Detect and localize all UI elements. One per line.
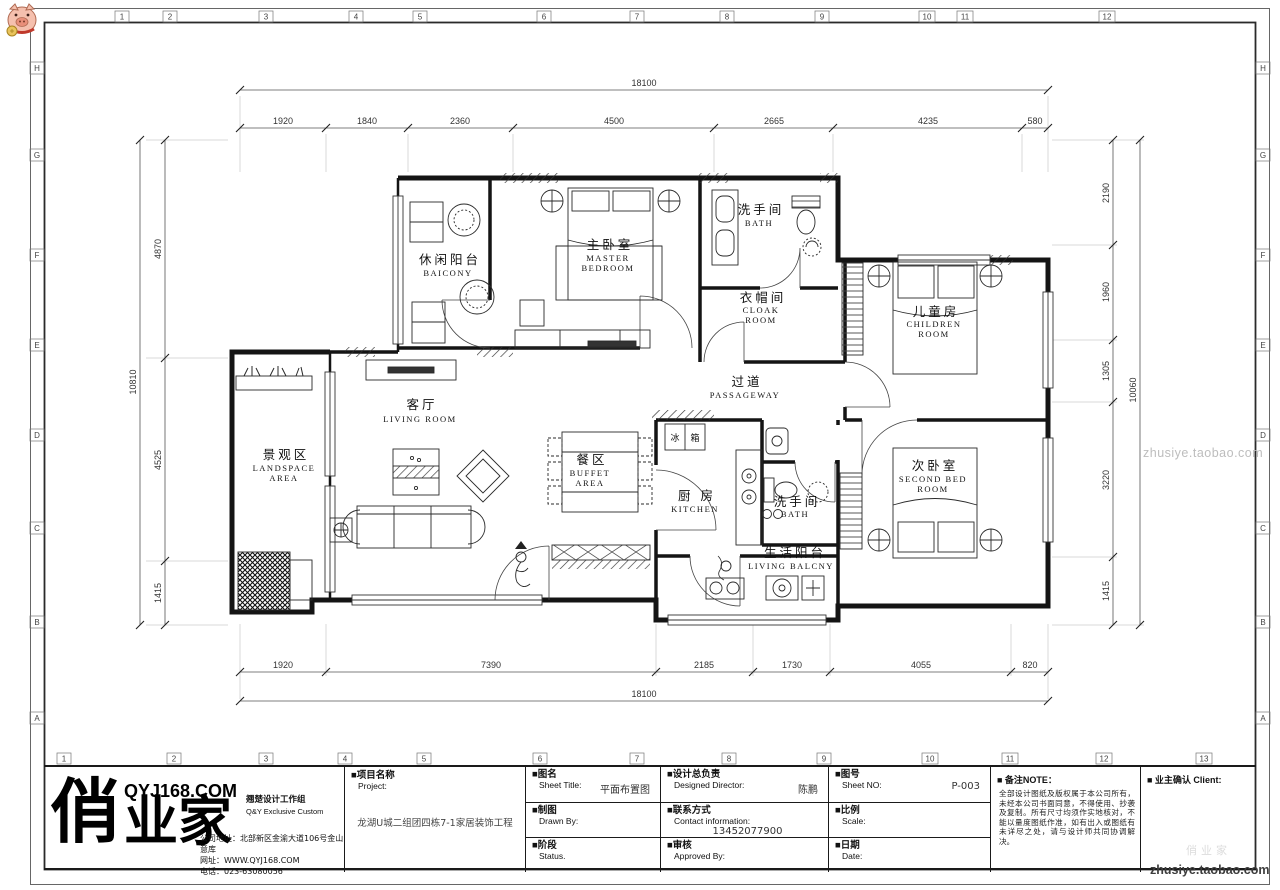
svg-text:C: C <box>1260 524 1266 533</box>
svg-text:1: 1 <box>62 755 67 764</box>
svg-text:BATH: BATH <box>781 509 809 519</box>
project-name: 龙湖U城二组团四栋7-1家居装饰工程 <box>345 815 525 829</box>
svg-text:AREA: AREA <box>269 473 298 483</box>
svg-text:A: A <box>1260 714 1266 723</box>
note-text: 全部设计图纸及版权属于本公司所有，未经本公司书面同意，不得使用、抄袭及复制。所有… <box>991 788 1140 847</box>
sheet-no-value: P-003 <box>951 781 980 792</box>
svg-text:12: 12 <box>1103 13 1112 22</box>
svg-text:过道: 过道 <box>731 374 762 389</box>
room-label-bath-2: 洗手间BATH <box>774 494 821 519</box>
svg-text:H: H <box>1260 64 1266 73</box>
company-phone: 电话：023-63080056 <box>200 866 344 877</box>
sheet-title-label-cn: ■图名 <box>532 770 660 780</box>
svg-text:KITCHEN: KITCHEN <box>671 504 719 514</box>
contact-phone: 13452077900 <box>667 826 828 837</box>
svg-text:9: 9 <box>822 755 827 764</box>
note-label: ■ 备注NOTE： <box>991 767 1140 788</box>
dim-bottom: 18100 1920 7390 2185 1730 4055 820 <box>273 660 1038 699</box>
svg-text:B: B <box>34 618 39 627</box>
svg-text:CLOAK: CLOAK <box>743 305 780 315</box>
extension-lines <box>146 96 1144 699</box>
svg-text:儿童房: 儿童房 <box>913 304 960 319</box>
scale-cell: ■比例 Scale: <box>829 802 990 837</box>
svg-text:7: 7 <box>635 13 640 22</box>
svg-text:18100: 18100 <box>631 689 656 699</box>
studio-name-en: Q&Y Exclusive Custom <box>246 807 323 816</box>
svg-text:D: D <box>1260 431 1266 440</box>
drawn-by-label-cn: ■制图 <box>532 806 660 816</box>
room-label-second-bedroom: 次卧室SECOND BEDROOM <box>899 458 967 494</box>
svg-text:PASSAGEWAY: PASSAGEWAY <box>710 390 781 400</box>
svg-text:4: 4 <box>343 755 348 764</box>
project-cell: ■项目名称 Project: 龙湖U城二组团四栋7-1家居装饰工程 <box>344 767 525 872</box>
room-label-landscape-area: 景观区LANDSPACEAREA <box>253 447 316 483</box>
status-label-en: Status. <box>532 851 660 861</box>
svg-text:SECOND BED: SECOND BED <box>899 474 967 484</box>
dim-left: 10810 4870 4525 1415 <box>128 239 163 603</box>
living-room-furniture <box>330 360 509 548</box>
grid-left: H G F E D C B A <box>30 62 44 724</box>
svg-text:洗手间: 洗手间 <box>774 494 821 509</box>
svg-text:休闲阳台: 休闲阳台 <box>419 252 481 267</box>
svg-text:1920: 1920 <box>273 660 293 670</box>
floorplan-sheet: 1 2 3 4 5 6 7 8 9 10 11 12 1 2 3 4 5 6 7… <box>0 0 1280 890</box>
svg-text:1920: 1920 <box>273 116 293 126</box>
svg-text:18100: 18100 <box>631 78 656 88</box>
svg-text:1415: 1415 <box>153 583 163 603</box>
dim-top: 18100 1920 1840 2360 4500 2665 4235 580 <box>273 78 1043 126</box>
room-label-living-room: 客厅LIVING ROOM <box>383 397 456 424</box>
svg-text:5: 5 <box>418 13 423 22</box>
date-label-en: Date: <box>835 851 990 861</box>
svg-text:11: 11 <box>961 13 970 22</box>
note-cell: ■ 备注NOTE： 全部设计图纸及版权属于本公司所有，未经本公司书面同意，不得使… <box>990 767 1140 872</box>
room-label-kitchen: 厨 房KITCHEN <box>671 488 719 514</box>
grid-bottom: 1 2 3 4 5 6 7 8 9 10 11 12 13 <box>57 753 1212 764</box>
svg-text:4870: 4870 <box>153 239 163 259</box>
svg-text:景观区: 景观区 <box>263 447 310 462</box>
svg-text:G: G <box>34 151 40 160</box>
logo-char: 俏 <box>50 777 120 847</box>
svg-text:主卧室: 主卧室 <box>587 237 634 252</box>
director-column: ■设计总负责 Designed Director: 陈鹏 ■联系方式 Conta… <box>660 767 828 872</box>
floorplan-drawing: 1 2 3 4 5 6 7 8 9 10 11 12 1 2 3 4 5 6 7… <box>0 0 1280 890</box>
drawn-by-label-en: Drawn By: <box>532 816 660 826</box>
svg-text:4055: 4055 <box>911 660 931 670</box>
svg-text:E: E <box>1260 341 1265 350</box>
svg-text:9: 9 <box>820 13 825 22</box>
svg-text:BATH: BATH <box>745 218 773 228</box>
svg-text:A: A <box>34 714 40 723</box>
svg-text:ROOM: ROOM <box>917 484 949 494</box>
svg-text:1840: 1840 <box>357 116 377 126</box>
director-cell: ■设计总负责 Designed Director: 陈鹏 <box>661 767 828 802</box>
svg-text:生活阳台: 生活阳台 <box>764 545 826 560</box>
svg-text:12: 12 <box>1100 755 1109 764</box>
svg-text:10: 10 <box>923 13 932 22</box>
date-label-cn: ■日期 <box>835 841 990 851</box>
svg-text:6: 6 <box>542 13 547 22</box>
svg-text:D: D <box>34 431 40 440</box>
grid-labels: 1 2 3 4 5 6 7 8 9 10 11 12 1 2 3 4 5 6 7… <box>30 11 1270 764</box>
studio-block: 翘楚设计工作组 Q&Y Exclusive Custom <box>246 793 323 816</box>
shoe-cabinet <box>552 545 650 560</box>
room-label-living-balcony: 生活阳台LIVING BALCNY <box>748 545 834 571</box>
watermark-bottom: zhusiye.taobao.com <box>1150 863 1275 877</box>
room-label-master-bedroom: 主卧室MASTERBEDROOM <box>581 237 634 273</box>
svg-text:客厅: 客厅 <box>406 397 437 412</box>
sheet-title-column: ■图名 Sheet Title: 平面布置图 ■制图 Drawn By: ■阶段… <box>525 767 660 872</box>
room-label-balcony: 休闲阳台BAICONY <box>419 252 481 278</box>
title-block: 俏 QYJ168.COM 业家 翘楚设计工作组 Q&Y Exclusive Cu… <box>44 765 1256 870</box>
svg-text:次卧室: 次卧室 <box>912 458 959 473</box>
client-label: ■ 业主确认 Client: <box>1141 767 1256 786</box>
svg-text:3: 3 <box>264 755 269 764</box>
approved-label-cn: ■审核 <box>667 841 828 851</box>
svg-text:厨 房: 厨 房 <box>678 488 716 503</box>
svg-text:F: F <box>1261 251 1266 260</box>
company-website: 网址：WWW.QYJ168.COM <box>200 855 344 866</box>
svg-text:H: H <box>34 64 40 73</box>
svg-text:2360: 2360 <box>450 116 470 126</box>
approved-label-en: Approved By: <box>667 851 828 861</box>
svg-text:2665: 2665 <box>764 116 784 126</box>
date-cell: ■日期 Date: <box>829 837 990 872</box>
svg-text:B: B <box>1260 618 1265 627</box>
company-contact: 公司地址：北部新区金渝大道106号金山意库 网址：WWW.QYJ168.COM … <box>200 833 344 877</box>
svg-text:G: G <box>1260 151 1266 160</box>
svg-text:BAICONY: BAICONY <box>423 268 472 278</box>
entry-person <box>515 541 530 587</box>
svg-text:7: 7 <box>635 755 640 764</box>
sheet-title-value: 平面布置图 <box>600 781 650 796</box>
contact-label-cn: ■联系方式 <box>667 806 828 816</box>
svg-text:ROOM: ROOM <box>745 315 777 325</box>
svg-text:10: 10 <box>926 755 935 764</box>
svg-text:2: 2 <box>168 13 173 22</box>
landscape-plants <box>236 366 312 610</box>
svg-text:820: 820 <box>1022 660 1037 670</box>
svg-text:4525: 4525 <box>153 450 163 470</box>
contact-cell: ■联系方式 Contact information: 13452077900 <box>661 802 828 837</box>
sheet-title-cell: ■图名 Sheet Title: 平面布置图 <box>526 767 660 802</box>
svg-text:LIVING ROOM: LIVING ROOM <box>383 414 456 424</box>
drawn-by-cell: ■制图 Drawn By: <box>526 802 660 837</box>
svg-text:10060: 10060 <box>1128 377 1138 402</box>
svg-text:1: 1 <box>120 13 125 22</box>
grid-right: H G F E D C B A <box>1256 62 1270 724</box>
svg-text:4500: 4500 <box>604 116 624 126</box>
svg-text:E: E <box>34 341 39 350</box>
svg-text:3220: 3220 <box>1101 470 1111 490</box>
svg-text:洗手间: 洗手间 <box>738 202 785 217</box>
approved-cell: ■审核 Approved By: <box>661 837 828 872</box>
status-label-cn: ■阶段 <box>532 841 660 851</box>
brand-stamp-faint: 俏业家 <box>1186 842 1231 858</box>
room-label-bath-1: 洗手间BATH <box>738 202 785 228</box>
svg-text:AREA: AREA <box>575 478 604 488</box>
project-label-cn: ■项目名称 <box>351 771 525 781</box>
svg-text:13: 13 <box>1200 755 1209 764</box>
sheet-no-column: ■图号 Sheet NO: P-003 ■比例 Scale: ■日期 Date: <box>828 767 990 872</box>
grid-top: 1 2 3 4 5 6 7 8 9 10 11 12 <box>115 11 1115 22</box>
svg-text:6: 6 <box>538 755 543 764</box>
logo-cell: 俏 QYJ168.COM 业家 翘楚设计工作组 Q&Y Exclusive Cu… <box>44 767 344 872</box>
svg-text:1730: 1730 <box>782 660 802 670</box>
director-name: 陈鹏 <box>798 781 818 796</box>
svg-text:2190: 2190 <box>1101 183 1111 203</box>
svg-text:10810: 10810 <box>128 369 138 394</box>
svg-text:4235: 4235 <box>918 116 938 126</box>
sheet-no-label-cn: ■图号 <box>835 770 990 780</box>
svg-text:LANDSPACE: LANDSPACE <box>253 463 316 473</box>
svg-text:1305: 1305 <box>1101 361 1111 381</box>
svg-text:F: F <box>35 251 40 260</box>
svg-text:餐区: 餐区 <box>576 452 607 467</box>
company-address: 公司地址：北部新区金渝大道106号金山意库 <box>200 833 344 855</box>
svg-text:2: 2 <box>172 755 177 764</box>
svg-text:11: 11 <box>1006 755 1015 764</box>
scale-label-en: Scale: <box>835 816 990 826</box>
svg-text:ROOM: ROOM <box>918 329 950 339</box>
svg-text:C: C <box>34 524 40 533</box>
svg-text:5: 5 <box>422 755 427 764</box>
room-label-cloak-room: 衣帽间CLOAKROOM <box>740 290 787 325</box>
svg-text:CHILDREN: CHILDREN <box>907 319 962 329</box>
svg-text:1960: 1960 <box>1101 282 1111 302</box>
svg-text:1415: 1415 <box>1101 581 1111 601</box>
sheet-no-cell: ■图号 Sheet NO: P-003 <box>829 767 990 802</box>
pig-mascot <box>0 0 44 40</box>
svg-text:衣帽间: 衣帽间 <box>740 290 787 305</box>
svg-text:3: 3 <box>264 13 269 22</box>
status-cell: ■阶段 Status. <box>526 837 660 872</box>
svg-text:580: 580 <box>1027 116 1042 126</box>
room-label-children-room: 儿童房CHILDRENROOM <box>907 304 962 339</box>
room-label-passageway: 过道PASSAGEWAY <box>710 374 781 400</box>
svg-text:BEDROOM: BEDROOM <box>581 263 634 273</box>
scale-label-cn: ■比例 <box>835 806 990 816</box>
svg-text:8: 8 <box>727 755 732 764</box>
dim-right: 10060 2190 1960 1305 3220 1415 <box>1101 183 1138 601</box>
room-label-buffet-area: 餐区BUFFETAREA <box>570 452 611 488</box>
svg-text:LIVING BALCNY: LIVING BALCNY <box>748 561 834 571</box>
contact-label-en: Contact information: <box>667 816 828 826</box>
watermark-mid: zhusiye.taobao.com <box>1143 446 1273 460</box>
director-label-cn: ■设计总负责 <box>667 770 828 780</box>
studio-name-cn: 翘楚设计工作组 <box>246 793 323 805</box>
svg-text:8: 8 <box>725 13 730 22</box>
svg-text:4: 4 <box>354 13 359 22</box>
svg-text:MASTER: MASTER <box>586 253 629 263</box>
svg-text:冰: 冰 <box>670 432 679 444</box>
svg-text:7390: 7390 <box>481 660 501 670</box>
svg-text:BUFFET: BUFFET <box>570 468 611 478</box>
kitchen-fixtures <box>665 424 788 545</box>
project-label-en: Project: <box>351 781 525 791</box>
svg-text:箱: 箱 <box>690 432 699 444</box>
svg-text:2185: 2185 <box>694 660 714 670</box>
